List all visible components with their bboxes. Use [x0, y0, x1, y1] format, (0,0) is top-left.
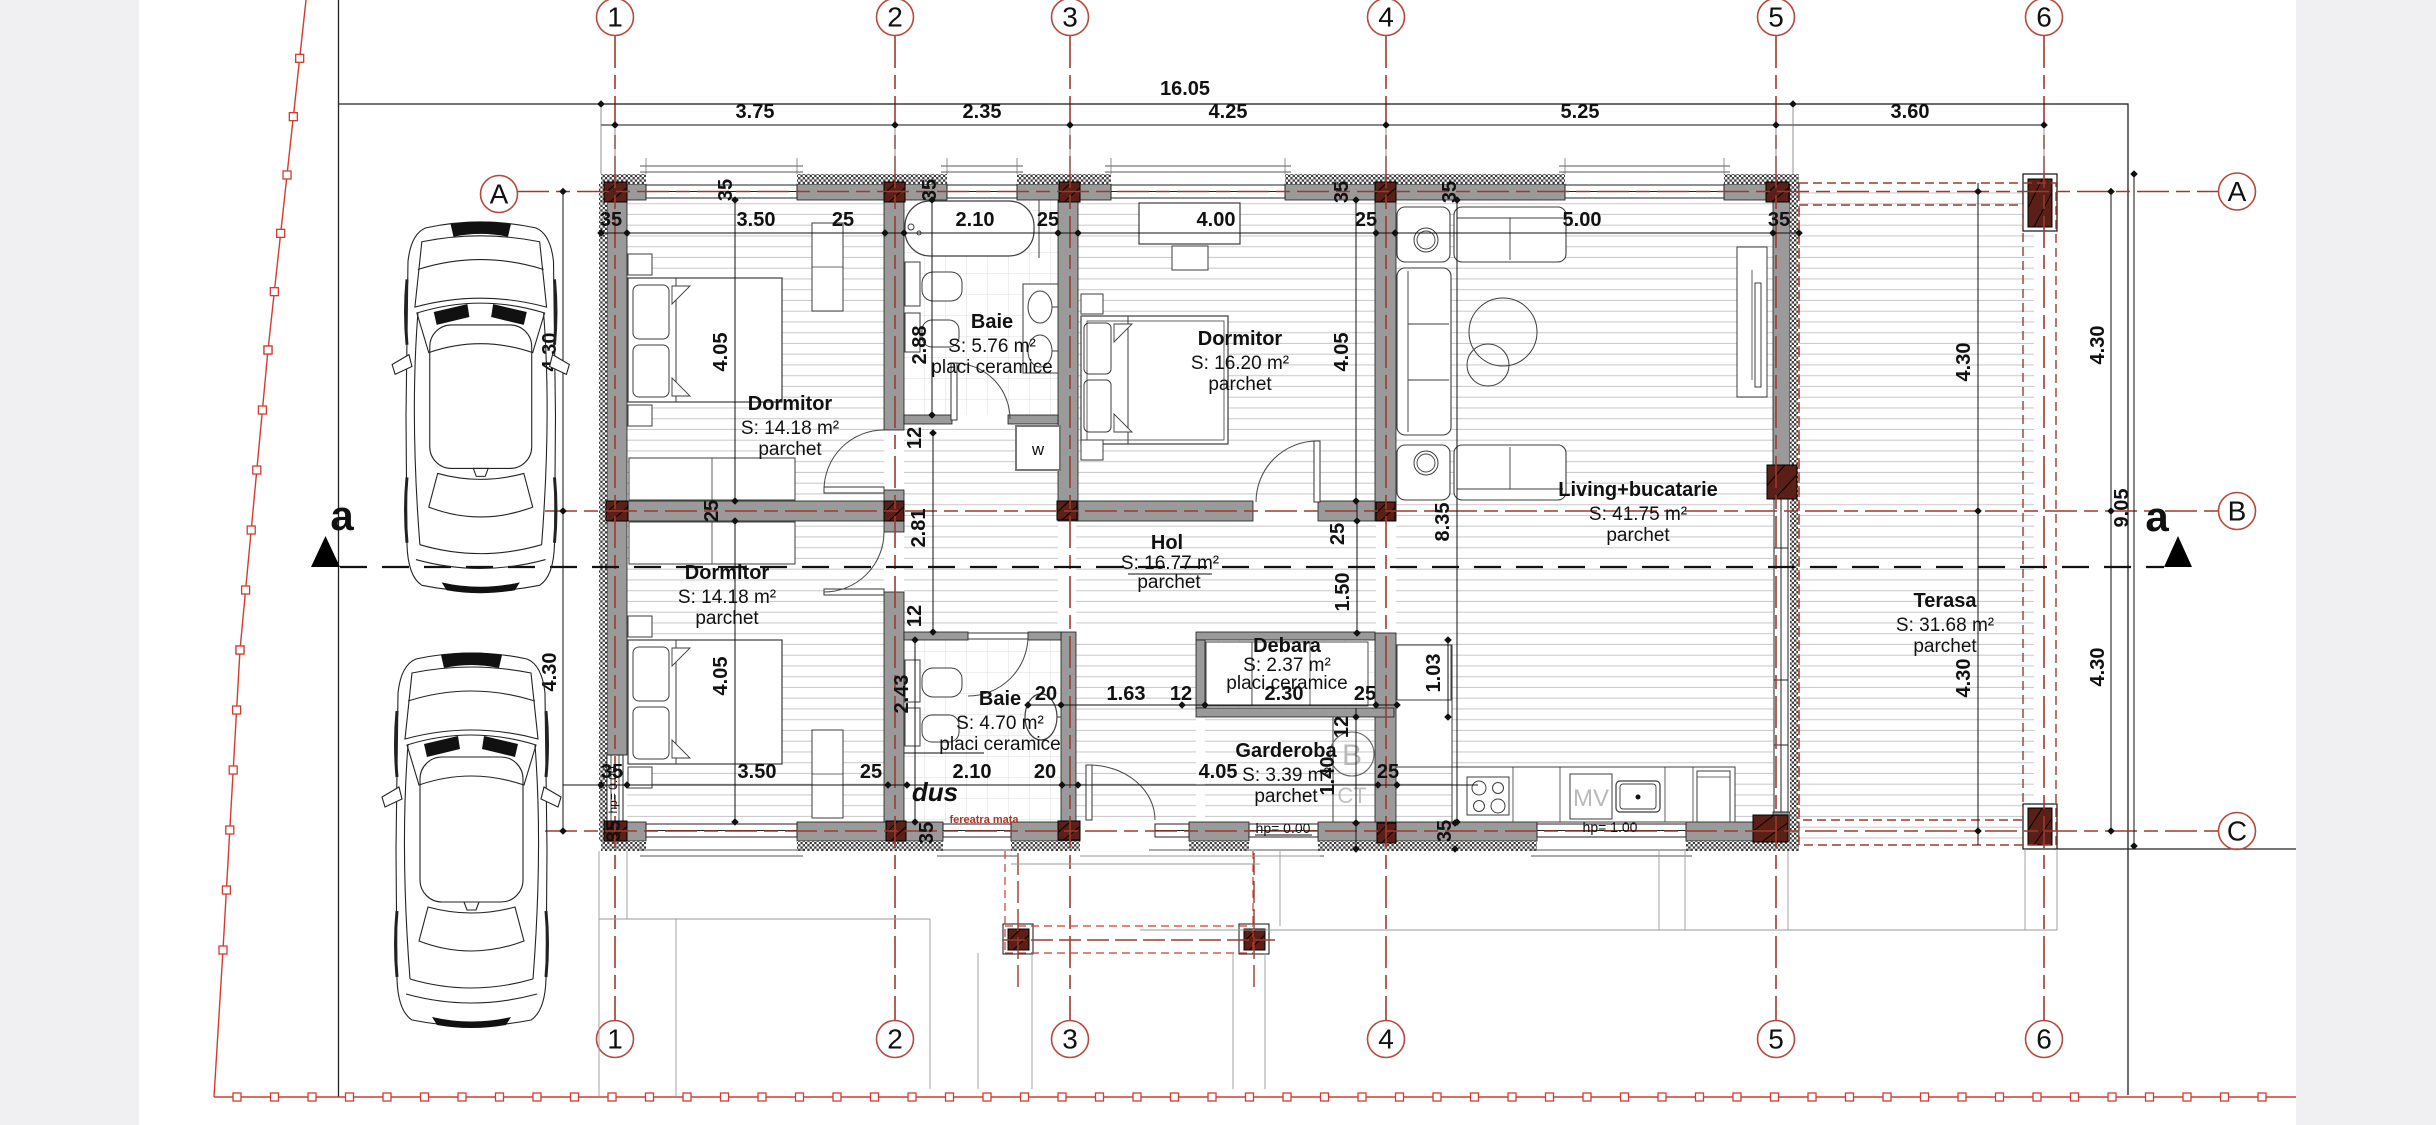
svg-text:1.50: 1.50	[1332, 573, 1354, 612]
svg-text:35: 35	[916, 822, 938, 844]
svg-text:4.30: 4.30	[2087, 648, 2109, 687]
svg-text:25: 25	[701, 500, 723, 522]
svg-text:parchet: parchet	[1137, 572, 1201, 593]
svg-text:4.05: 4.05	[710, 657, 732, 696]
svg-text:parchet: parchet	[1606, 525, 1670, 546]
svg-text:12: 12	[904, 605, 926, 627]
svg-text:3: 3	[1062, 2, 1078, 33]
svg-text:parchet: parchet	[1254, 786, 1318, 807]
svg-text:a: a	[330, 492, 354, 539]
svg-text:fereatra mata: fereatra mata	[949, 814, 1019, 826]
svg-text:5.00: 5.00	[1563, 209, 1602, 231]
svg-text:hp= 0.00: hp= 0.00	[606, 766, 620, 813]
svg-text:4.30: 4.30	[539, 653, 561, 692]
svg-text:4.05: 4.05	[1331, 333, 1353, 372]
svg-text:1: 1	[607, 1024, 623, 1055]
svg-text:S: 31.68 m²: S: 31.68 m²	[1896, 615, 1994, 636]
svg-text:Dormitor: Dormitor	[748, 393, 833, 415]
svg-text:3.50: 3.50	[738, 761, 777, 783]
svg-text:25: 25	[1355, 209, 1377, 231]
svg-text:25: 25	[1377, 761, 1399, 783]
svg-text:S: 14.18 m²: S: 14.18 m²	[678, 587, 776, 608]
svg-text:MV: MV	[1573, 785, 1609, 812]
svg-text:S: 16.20 m²: S: 16.20 m²	[1191, 353, 1289, 374]
svg-text:S: 41.75 m²: S: 41.75 m²	[1589, 504, 1687, 525]
svg-text:Debara: Debara	[1253, 635, 1322, 657]
svg-text:35: 35	[600, 209, 622, 231]
svg-text:3.50: 3.50	[737, 209, 776, 231]
svg-text:35: 35	[1331, 181, 1353, 203]
svg-text:S: 16.77 m²: S: 16.77 m²	[1121, 553, 1219, 574]
svg-text:1.63: 1.63	[1107, 683, 1146, 705]
svg-text:4.30: 4.30	[1953, 343, 1975, 382]
svg-text:12: 12	[1170, 683, 1192, 705]
svg-text:parchet: parchet	[758, 439, 822, 460]
svg-text:20: 20	[1034, 761, 1056, 783]
svg-text:1.03: 1.03	[1423, 654, 1445, 693]
svg-text:parchet: parchet	[1208, 374, 1272, 395]
svg-text:4.30: 4.30	[1953, 659, 1975, 698]
svg-text:A: A	[490, 179, 509, 210]
svg-text:parchet: parchet	[695, 608, 759, 629]
svg-text:4.05: 4.05	[1199, 761, 1238, 783]
svg-text:2: 2	[887, 2, 903, 33]
svg-text:2.35: 2.35	[963, 101, 1002, 123]
svg-text:35: 35	[919, 179, 941, 201]
svg-text:3.75: 3.75	[736, 101, 775, 123]
svg-text:hp= 0.00: hp= 0.00	[1256, 820, 1311, 836]
svg-text:5: 5	[1768, 2, 1784, 33]
svg-text:a: a	[2145, 493, 2169, 540]
svg-text:Garderoba: Garderoba	[1235, 740, 1337, 762]
svg-text:25: 25	[860, 761, 882, 783]
svg-text:4.00: 4.00	[1197, 209, 1236, 231]
svg-text:25: 25	[832, 209, 854, 231]
svg-text:3: 3	[1062, 1024, 1078, 1055]
svg-text:25: 25	[1327, 523, 1349, 545]
svg-text:4: 4	[1378, 1024, 1394, 1055]
svg-text:Baie: Baie	[979, 688, 1021, 710]
svg-text:4.30: 4.30	[2087, 326, 2109, 365]
svg-text:Living+bucatarie: Living+bucatarie	[1558, 479, 1718, 501]
svg-text:35: 35	[603, 820, 625, 842]
svg-text:Baie: Baie	[971, 311, 1013, 333]
svg-text:35: 35	[1439, 181, 1461, 203]
svg-text:placi ceramice: placi ceramice	[1226, 673, 1347, 694]
svg-text:S: 4.70 m²: S: 4.70 m²	[956, 713, 1044, 734]
svg-text:3.60: 3.60	[1891, 101, 1930, 123]
svg-text:Dormitor: Dormitor	[1198, 328, 1283, 350]
svg-text:35: 35	[1768, 209, 1790, 231]
svg-text:parchet: parchet	[1913, 636, 1977, 657]
svg-text:5: 5	[1768, 1024, 1784, 1055]
svg-text:dus: dus	[912, 777, 958, 807]
svg-text:hp= 1.00: hp= 1.00	[1583, 819, 1638, 835]
svg-text:6: 6	[2036, 1024, 2052, 1055]
svg-text:w: w	[1031, 440, 1045, 459]
svg-text:2: 2	[887, 1024, 903, 1055]
svg-text:2.10: 2.10	[956, 209, 995, 231]
svg-text:6: 6	[2036, 2, 2052, 33]
svg-text:35: 35	[715, 179, 737, 201]
svg-text:B: B	[1342, 739, 1362, 772]
svg-text:1: 1	[607, 2, 623, 33]
svg-text:4.05: 4.05	[710, 333, 732, 372]
svg-text:2.10: 2.10	[953, 761, 992, 783]
svg-text:2.88: 2.88	[909, 326, 931, 365]
svg-text:S: 5.76 m²: S: 5.76 m²	[948, 336, 1036, 357]
svg-text:S: 3.39 m²: S: 3.39 m²	[1242, 765, 1330, 786]
svg-text:S: 14.18 m²: S: 14.18 m²	[741, 418, 839, 439]
svg-text:Dormitor: Dormitor	[685, 562, 770, 584]
svg-text:12: 12	[1331, 716, 1353, 738]
svg-text:5.25: 5.25	[1561, 101, 1600, 123]
svg-text:25: 25	[1037, 209, 1059, 231]
svg-text:8.35: 8.35	[1432, 503, 1454, 542]
svg-text:placi ceramice: placi ceramice	[931, 357, 1052, 378]
svg-text:16.05: 16.05	[1160, 78, 1210, 100]
svg-text:2.81: 2.81	[908, 509, 930, 548]
svg-text:C: C	[2227, 816, 2247, 847]
svg-text:20: 20	[1035, 683, 1057, 705]
svg-text:35: 35	[1434, 820, 1456, 842]
svg-text:Hol: Hol	[1151, 532, 1183, 554]
svg-text:4: 4	[1378, 2, 1394, 33]
svg-text:B: B	[2228, 496, 2247, 527]
svg-text:2.43: 2.43	[891, 675, 913, 714]
svg-text:Terasa: Terasa	[1913, 590, 1977, 612]
svg-text:placi ceramice: placi ceramice	[939, 734, 1060, 755]
svg-text:A: A	[2228, 176, 2247, 207]
svg-text:CT: CT	[1337, 783, 1366, 808]
svg-text:9.05: 9.05	[2111, 489, 2133, 528]
svg-text:25: 25	[1354, 683, 1376, 705]
svg-text:4.25: 4.25	[1209, 101, 1248, 123]
svg-text:12: 12	[904, 427, 926, 449]
